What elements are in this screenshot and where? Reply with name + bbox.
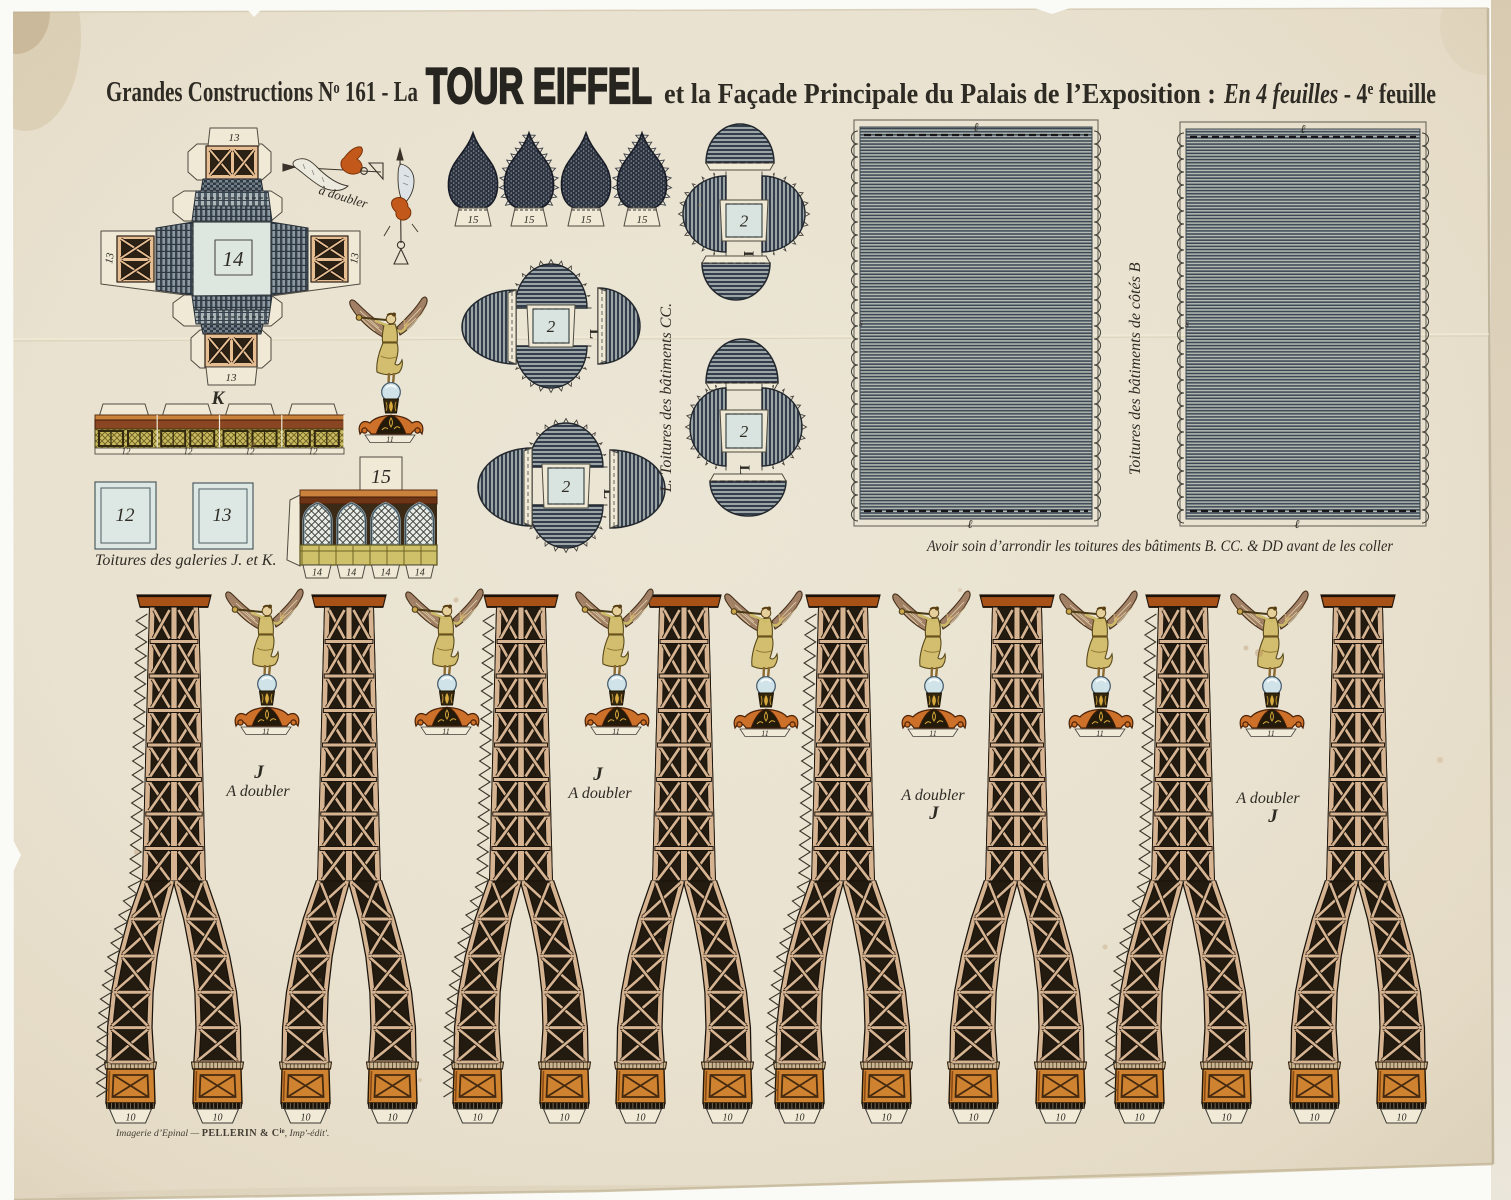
svg-text:2: 2 xyxy=(562,477,571,496)
svg-text:2: 2 xyxy=(740,212,749,231)
svg-text:J: J xyxy=(928,803,939,824)
svg-text:J: J xyxy=(1267,806,1278,827)
svg-text:13: 13 xyxy=(226,372,238,384)
svg-text:A doubler: A doubler xyxy=(567,785,632,802)
svg-text:ℓ: ℓ xyxy=(968,517,973,531)
svg-text:Grandes Constructions No 161 -: Grandes Constructions No 161 - La xyxy=(106,77,418,108)
svg-text:ℓ: ℓ xyxy=(1301,122,1306,136)
svg-text:2: 2 xyxy=(547,317,556,336)
svg-text:12: 12 xyxy=(246,447,256,457)
svg-text:Toitures des galeries J. et K.: Toitures des galeries J. et K. xyxy=(95,552,276,569)
svg-text:14: 14 xyxy=(381,568,391,579)
svg-text:15: 15 xyxy=(524,214,536,226)
svg-text:A doubler: A doubler xyxy=(225,783,290,800)
svg-text:Avoir soin d’arrondir les toit: Avoir soin d’arrondir les toitures des b… xyxy=(926,538,1394,555)
svg-text:14: 14 xyxy=(415,568,425,579)
svg-text:et la Façade Principale du Pal: et la Façade Principale du Palais de l’E… xyxy=(664,79,1216,110)
svg-text:12: 12 xyxy=(116,505,136,526)
svg-text:15: 15 xyxy=(637,214,649,226)
svg-text:14: 14 xyxy=(346,568,356,579)
svg-text:12: 12 xyxy=(122,447,132,457)
svg-text:14: 14 xyxy=(312,568,322,579)
svg-text:s: s xyxy=(859,318,863,329)
svg-text:J: J xyxy=(592,764,603,785)
svg-text:12: 12 xyxy=(184,447,194,457)
svg-text:Imagerie d’Epinal — PELLERIN &: Imagerie d’Epinal — PELLERIN & Cie, Impʹ… xyxy=(115,1127,329,1139)
svg-text:14: 14 xyxy=(223,247,245,271)
svg-text:En 4 feuilles - 4e feuille: En 4 feuilles - 4e feuille xyxy=(1223,79,1436,110)
svg-text:J: J xyxy=(253,762,264,783)
svg-text:15: 15 xyxy=(468,214,480,226)
svg-text:13: 13 xyxy=(229,132,241,144)
svg-text:15: 15 xyxy=(581,214,593,226)
svg-text:s: s xyxy=(1185,319,1189,330)
svg-text:ℓ: ℓ xyxy=(1295,517,1300,531)
svg-text:A doubler: A doubler xyxy=(1235,790,1300,807)
svg-text:L. Toitures des bâtiments CC.: L. Toitures des bâtiments CC. xyxy=(658,303,675,493)
svg-text:15: 15 xyxy=(371,466,391,488)
svg-text:ℓ: ℓ xyxy=(974,120,979,134)
svg-text:A doubler: A doubler xyxy=(900,787,965,804)
svg-text:K: K xyxy=(211,388,226,409)
svg-text:13: 13 xyxy=(213,505,232,526)
svg-text:2: 2 xyxy=(740,422,749,441)
svg-text:TOUR EIFFEL: TOUR EIFFEL xyxy=(426,58,652,114)
svg-text:12: 12 xyxy=(309,447,319,457)
svg-text:Toitures des bâtiments de côté: Toitures des bâtiments de côtés B xyxy=(1127,262,1144,475)
